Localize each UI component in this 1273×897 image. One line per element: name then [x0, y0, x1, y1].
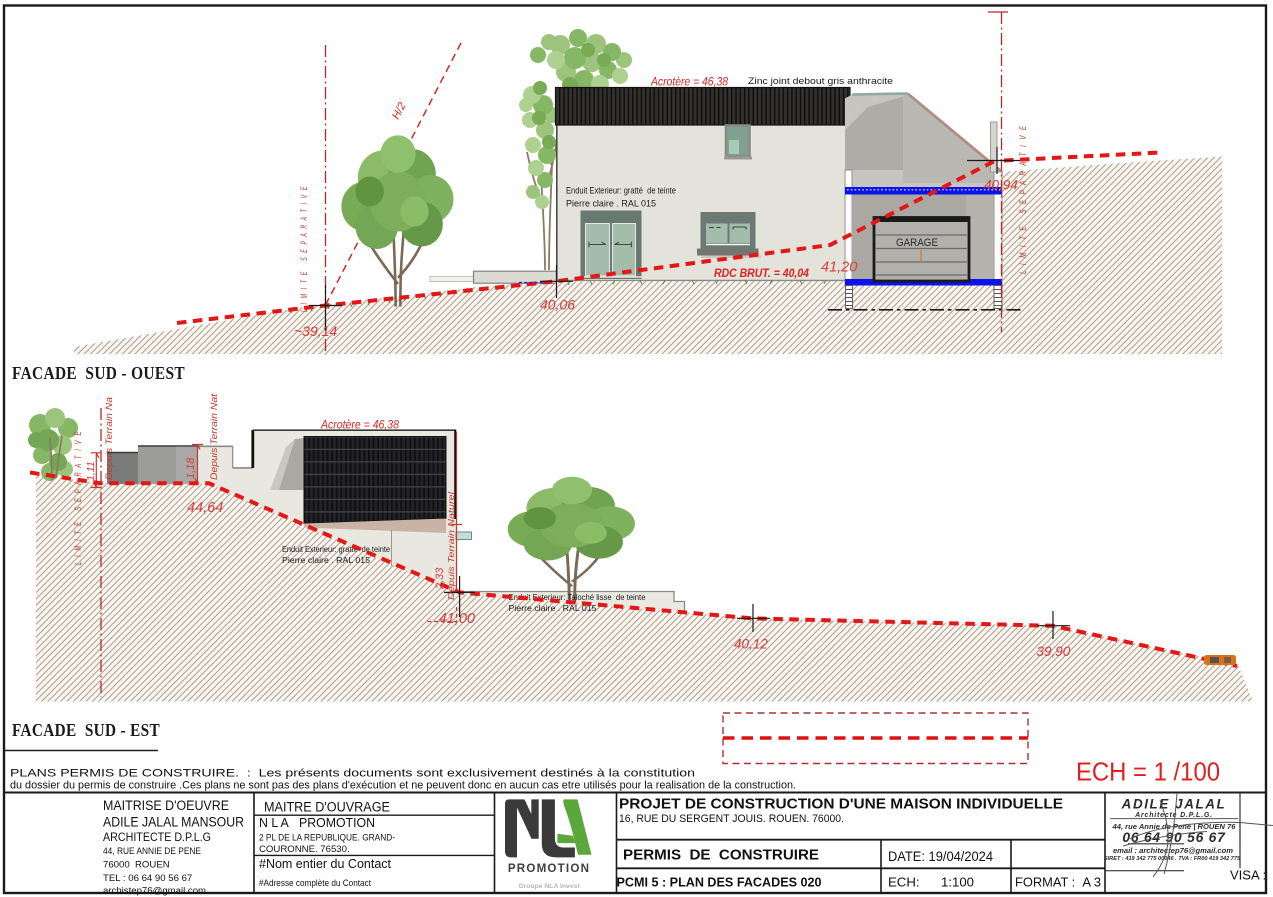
svg-text:40,12: 40,12 [734, 637, 768, 652]
svg-text:ECH:: ECH: [888, 875, 920, 890]
svg-text:76000 ROUEN: 76000 ROUEN [103, 860, 170, 871]
svg-text:Depuis Terrain Nat: Depuis Terrain Nat [209, 393, 219, 480]
svg-text:Architecte D.P.L.G.: Architecte D.P.L.G. [1134, 812, 1213, 819]
svg-text:ADILE JALAL MANSOUR: ADILE JALAL MANSOUR [103, 815, 244, 830]
svg-text:#Adresse complète du Contact: #Adresse complète du Contact [259, 878, 371, 889]
svg-text:Enduit Exterieur: gratté de t: Enduit Exterieur: gratté de teinte [566, 186, 676, 196]
svg-text:44, RUE ANNIE DE PENE: 44, RUE ANNIE DE PENE [103, 846, 201, 857]
svg-text:FACADE SUD - EST: FACADE SUD - EST [12, 720, 160, 740]
svg-text:Depuis Terrain Na: Depuis Terrain Na [104, 397, 114, 480]
svg-text:FORMAT : A 3: FORMAT : A 3 [1015, 875, 1101, 890]
svg-text:2,33: 2,33 [434, 567, 446, 590]
svg-text:16, RUE DU SERGENT JOUIS. ROUE: 16, RUE DU SERGENT JOUIS. ROUEN. 76000. [619, 813, 844, 825]
svg-text:1:100: 1:100 [941, 875, 974, 890]
svg-text:Enduit Exterieur: gratté de t: Enduit Exterieur: gratté de teinte [282, 544, 390, 554]
svg-text:1,11: 1,11 [85, 461, 97, 481]
svg-text:Depuis Terrain Naturel: Depuis Terrain Naturel [446, 491, 456, 600]
svg-text:Acrotère = 46,38: Acrotère = 46,38 [650, 75, 728, 89]
svg-text:PERMIS DE CONSTRUIRE: PERMIS DE CONSTRUIRE [623, 847, 819, 864]
svg-text:N L A PROMOTION: N L A PROMOTION [259, 815, 375, 830]
svg-text:MAITRISE D'OEUVRE: MAITRISE D'OEUVRE [103, 798, 229, 813]
svg-text:ADILE JALAL: ADILE JALAL [1121, 797, 1227, 812]
svg-text:Enduit Exterieur: Taloché liss: Enduit Exterieur: Taloché lisse de teint… [509, 592, 646, 602]
svg-text:PCMI 5 : PLAN DES FACADES 020: PCMI 5 : PLAN DES FACADES 020 [617, 875, 822, 890]
svg-text:2 PL DE LA REPUBLIQUE. GRAND-: 2 PL DE LA REPUBLIQUE. GRAND- [259, 833, 395, 844]
svg-text:L I M I T E S E P A R A T I: L I M I T E S E P A R A T I V E [299, 185, 309, 312]
svg-text:FACADE SUD - OUEST: FACADE SUD - OUEST [12, 363, 185, 383]
svg-text:DATE: 19/04/2024: DATE: 19/04/2024 [888, 849, 993, 864]
svg-text:L I M I T E S E P A R A T I: L I M I T E S E P A R A T I V E [73, 430, 83, 565]
svg-text:1,18: 1,18 [185, 457, 197, 479]
svg-text:41,00: 41,00 [439, 611, 475, 627]
svg-text:Groupe NLA Invest: Groupe NLA Invest [518, 883, 580, 890]
svg-text:44,64: 44,64 [187, 500, 223, 516]
svg-text:Zinc joint debout gris anthrac: Zinc joint debout gris anthracite [748, 76, 893, 86]
svg-text:41,20: 41,20 [821, 260, 857, 276]
svg-text:39,90: 39,90 [1037, 644, 1071, 659]
svg-text:06 64 90 56 67: 06 64 90 56 67 [1122, 830, 1226, 845]
svg-text:RDC BRUT. = 40,04: RDC BRUT. = 40,04 [714, 266, 809, 280]
svg-text:VISA :: VISA : [1230, 868, 1266, 883]
svg-text:GARAGE: GARAGE [896, 237, 938, 249]
svg-text:Acrotère = 46,38: Acrotère = 46,38 [320, 418, 399, 432]
svg-text:du dossier du permis de constr: du dossier du permis de construire .Ces … [10, 780, 796, 792]
svg-text:40,06: 40,06 [540, 297, 575, 313]
svg-text:TEL : 06 64 90 56 67: TEL : 06 64 90 56 67 [103, 873, 192, 884]
svg-text:email : architectep76@gmail.co: email : architectep76@gmail.com [1113, 846, 1233, 855]
svg-text:ARCHITECTE D.P.L.G: ARCHITECTE D.P.L.G [103, 830, 211, 844]
svg-text:SIRET : 419 342 775 00046 . TV: SIRET : 419 342 775 00046 . TVA : FR00 4… [1104, 856, 1241, 862]
svg-text:MAITRE D'OUVRAGE: MAITRE D'OUVRAGE [264, 800, 390, 815]
svg-text:Pierre claire . RAL 015: Pierre claire . RAL 015 [282, 555, 370, 565]
svg-text:L I M I T E S E P A R A T I: L I M I T E S E P A R A T I V E [1018, 124, 1028, 274]
svg-text:~39,14: ~39,14 [294, 323, 337, 339]
svg-text:archistep76@gmail.com: archistep76@gmail.com [103, 886, 206, 897]
svg-text:ECH = 1 /100: ECH = 1 /100 [1076, 757, 1220, 787]
svg-text:PROJET DE CONSTRUCTION D'UNE M: PROJET DE CONSTRUCTION D'UNE MAISON INDI… [619, 796, 1063, 813]
svg-text:PLANS PERMIS DE CONSTRUIRE. :: PLANS PERMIS DE CONSTRUIRE. : Les présen… [10, 768, 695, 780]
svg-text:#Nom entier du Contact: #Nom entier du Contact [259, 856, 391, 871]
svg-text:40,94: 40,94 [984, 178, 1018, 193]
svg-text:COURONNE. 76530.: COURONNE. 76530. [259, 844, 350, 855]
svg-text:Pierre claire . RAL 015: Pierre claire . RAL 015 [566, 199, 656, 209]
svg-text:PROMOTION: PROMOTION [508, 862, 590, 875]
